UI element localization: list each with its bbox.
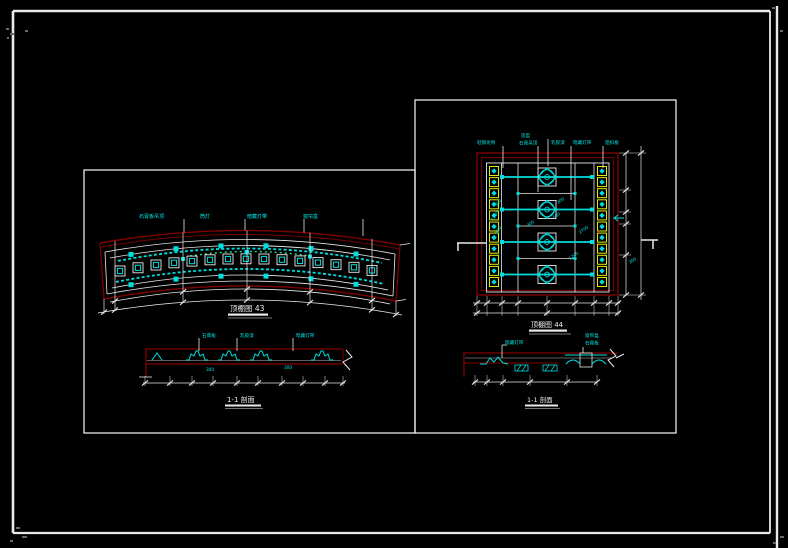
view-title: 顶棚图 44 [531, 320, 564, 329]
view-title: 顶棚图 43 [230, 303, 265, 313]
right-dimensions [619, 146, 646, 300]
callout-label: 暗藏灯带 [296, 332, 315, 339]
dim-text: 300 [526, 219, 536, 228]
left-section-title-block: 1-1 剖面 [225, 395, 263, 409]
callout-label: 窗帘盒 [303, 213, 318, 220]
section-callouts: 石膏板 乳胶漆 暗藏灯带 300 300 [199, 332, 315, 372]
sheet-frame [6, 6, 784, 548]
left-viewport-border [84, 170, 415, 433]
left-plan-title-block: 顶棚图 43 [228, 303, 272, 318]
view-title: 1-1 剖面 [227, 395, 255, 404]
callout-label: 石膏吊顶 [519, 140, 538, 147]
callout-label: 暗藏灯带 [505, 339, 524, 346]
leader-arrow [614, 215, 624, 221]
section-dimension [472, 375, 600, 386]
dim-text: 300 [556, 196, 566, 205]
dim-text: 2700 [578, 224, 590, 234]
cove-detail [565, 353, 607, 367]
callout-label: 轻钢龙骨 [477, 139, 496, 146]
band-cells [115, 254, 377, 276]
left-section: 石膏板 乳胶漆 暗藏灯带 300 300 1-1 剖面 [139, 332, 352, 409]
callout-label: 暗藏灯带 [247, 213, 267, 220]
right-grid-strip [598, 167, 607, 287]
cad-drawing: 石膏板吊顶 筒灯 暗藏灯带 窗帘盒 顶棚图 43 石膏板 乳胶漆 [0, 0, 788, 548]
callout-label: 石膏板 [202, 332, 216, 339]
plan-callouts: 石膏板吊顶 筒灯 暗藏灯带 窗帘盒 [139, 213, 363, 236]
callout-label: 乳胶漆 [240, 332, 254, 339]
dim-text: 300 [206, 367, 214, 372]
section-callouts: 暗藏灯带 窗帘盒 石膏板 [502, 332, 599, 358]
right-ceiling-plan: 轻钢龙骨 造型 石膏吊顶 乳胶漆 暗藏灯带 铝扣板 300 1200 600 3… [457, 132, 658, 334]
callout-label: 筒灯 [200, 213, 210, 220]
callout-label: 石膏板 [585, 340, 599, 347]
plan-dim-texts: 300 1200 600 300 600 300 2700 1200 300 [490, 196, 638, 265]
right-section: 暗藏灯带 窗帘盒 石膏板 1-1 剖面 [463, 332, 624, 409]
left-ceiling-plan: 石膏板吊顶 筒灯 暗藏灯带 窗帘盒 顶棚图 43 [98, 213, 410, 318]
callout-label: 窗帘盒 [585, 332, 599, 339]
callout-label: 石膏板吊顶 [139, 213, 164, 220]
cad-screen: 石膏板吊顶 筒灯 暗藏灯带 窗帘盒 顶棚图 43 石膏板 乳胶漆 [0, 0, 788, 548]
hatched-box [515, 365, 557, 371]
callout-label: 暗藏灯带 [573, 139, 592, 146]
break-symbol [343, 350, 352, 370]
bottom-dimensions [473, 296, 621, 316]
callout-label: 造型 [521, 132, 531, 139]
dim-text: 300 [284, 365, 292, 370]
right-section-title-block: 1-1 剖面 [525, 395, 560, 409]
right-plan-title-block: 顶棚图 44 [529, 320, 571, 334]
callout-label: 铝扣板 [605, 139, 619, 146]
section-dimension [142, 376, 346, 386]
dim-text: 300 [628, 256, 638, 265]
corner-mark [6, 7, 784, 544]
view-title: 1-1 剖面 [527, 395, 553, 404]
callout-label: 乳胶漆 [551, 139, 565, 146]
